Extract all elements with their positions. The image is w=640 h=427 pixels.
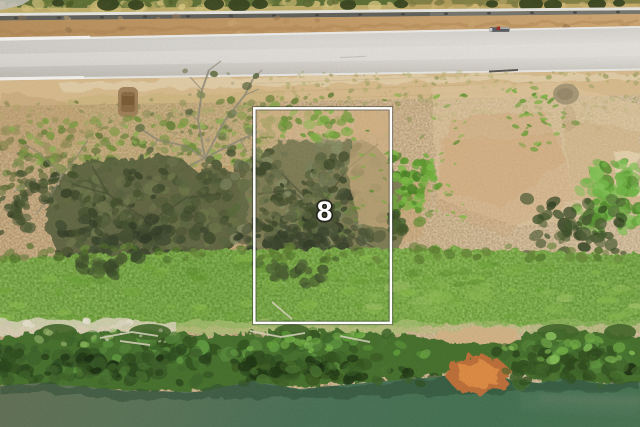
svg-text:8: 8 [317, 196, 333, 227]
